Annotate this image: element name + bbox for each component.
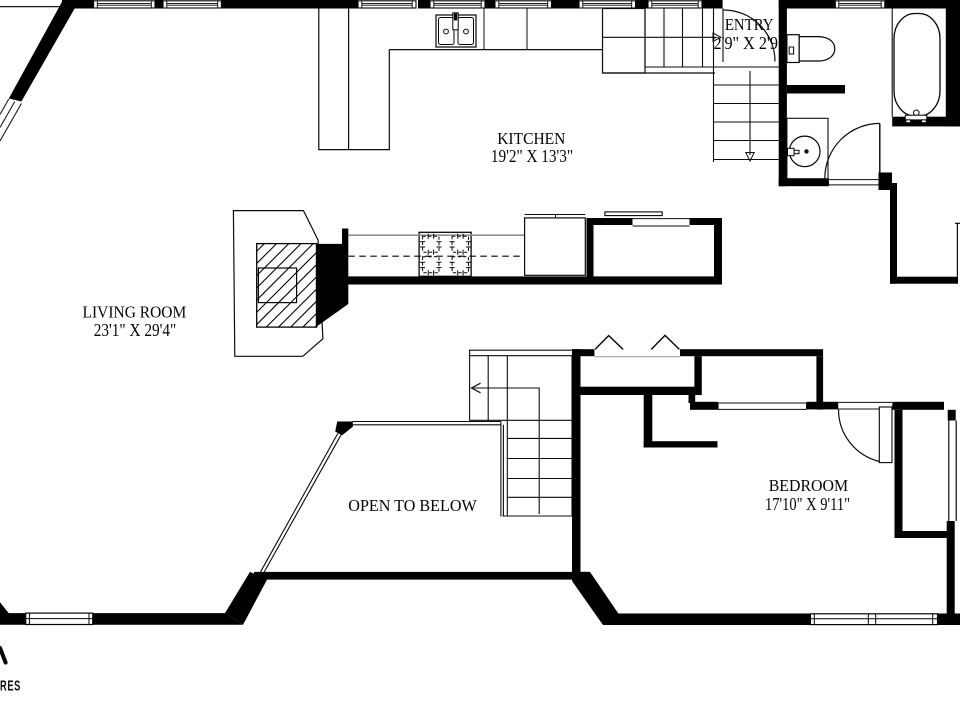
svg-text:19'2" X 13'3": 19'2" X 13'3" [491, 146, 573, 166]
svg-text:BEDROOM: BEDROOM [769, 476, 848, 495]
svg-text:LIVING ROOM: LIVING ROOM [83, 303, 187, 322]
svg-text:OPEN TO BELOW: OPEN TO BELOW [348, 496, 477, 515]
svg-text:2'9" X 2'9": 2'9" X 2'9" [714, 33, 785, 53]
svg-text:RES: RES [0, 677, 21, 694]
svg-text:23'1" X 29'4": 23'1" X 29'4" [94, 320, 177, 340]
svg-text:17'10" X 9'11": 17'10" X 9'11" [765, 494, 850, 514]
svg-text:ENTRY: ENTRY [725, 15, 774, 34]
